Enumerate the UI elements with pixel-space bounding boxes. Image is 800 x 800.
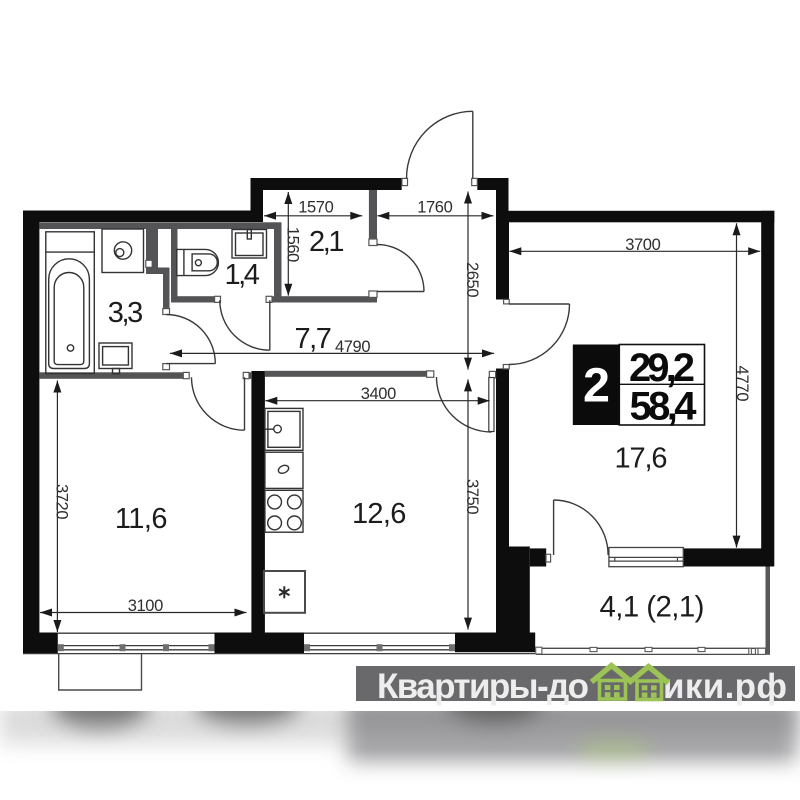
svg-text:Квартиры-до: Квартиры-до (377, 667, 589, 706)
svg-text:ики.рф: ики.рф (663, 667, 787, 706)
svg-text:3720: 3720 (52, 484, 70, 520)
svg-text:1570: 1570 (298, 199, 334, 217)
svg-text:1760: 1760 (417, 199, 453, 217)
svg-text:4770: 4770 (733, 366, 751, 402)
svg-text:4,1 (2,1): 4,1 (2,1) (600, 590, 705, 623)
svg-text:3100: 3100 (128, 597, 164, 615)
svg-text:3700: 3700 (625, 236, 661, 254)
svg-text:12,6: 12,6 (352, 498, 407, 530)
svg-text:11,6: 11,6 (115, 503, 168, 535)
svg-text:1,4: 1,4 (224, 259, 260, 291)
svg-text:3750: 3750 (463, 479, 481, 515)
svg-text:58,4: 58,4 (630, 385, 698, 429)
svg-text:1560: 1560 (283, 227, 301, 262)
svg-text:7,7: 7,7 (294, 323, 332, 355)
svg-text:3400: 3400 (361, 385, 397, 403)
svg-text:2650: 2650 (463, 262, 481, 298)
svg-text:4790: 4790 (335, 338, 371, 356)
svg-text:2,1: 2,1 (309, 226, 345, 258)
svg-text:3,3: 3,3 (108, 297, 144, 329)
svg-text:2: 2 (583, 359, 610, 413)
svg-text:17,6: 17,6 (615, 443, 668, 475)
